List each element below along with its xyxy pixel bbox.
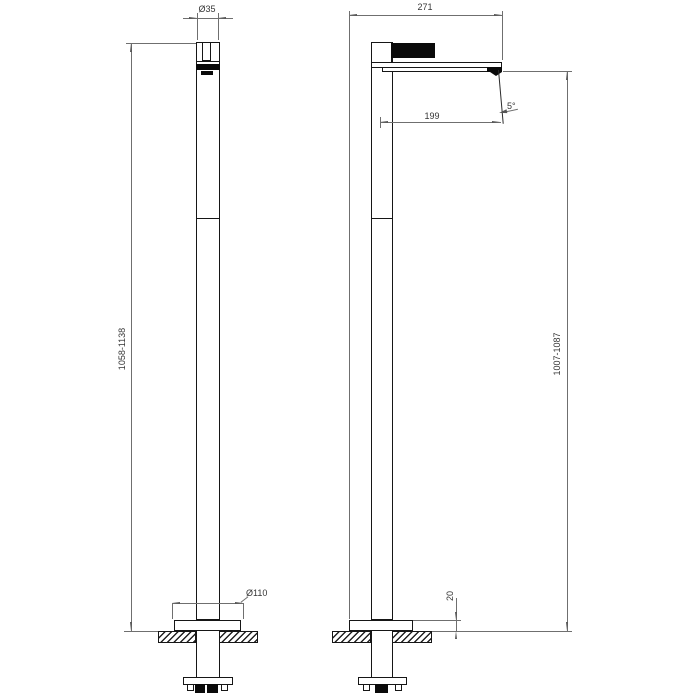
dim-arrow	[380, 121, 388, 123]
extension-line	[413, 620, 461, 621]
dim-arrow	[566, 622, 568, 631]
handle-seat-line	[196, 61, 220, 62]
extension-line	[503, 71, 572, 72]
dim-arrow	[566, 71, 568, 80]
dim-line	[131, 43, 132, 631]
dim-arrow	[172, 602, 180, 604]
floor-hatch	[219, 631, 258, 643]
handle-collar-notch	[201, 71, 213, 75]
dim-label-spout-reach: 199	[414, 111, 450, 121]
extension-line	[243, 603, 244, 619]
dim-label-base-diameter: Ø110	[246, 588, 267, 598]
flange-bolt	[395, 684, 402, 691]
base-plate-right	[349, 620, 413, 631]
column-joint-line	[371, 218, 393, 219]
hose-connector	[375, 684, 388, 693]
dim-label-height-right: 1007-1087	[552, 319, 562, 389]
extension-line	[197, 13, 198, 40]
extension-line	[502, 11, 503, 60]
base-plate-left	[174, 620, 241, 631]
column-joint-line	[196, 218, 220, 219]
floor-line	[124, 631, 158, 632]
dim-line	[172, 603, 244, 604]
dim-label-base-height: 20	[445, 586, 455, 606]
floor-hatch	[392, 631, 432, 643]
supply-pipe-left	[196, 631, 220, 677]
flow-angle-line	[498, 70, 504, 124]
floor-hatch	[158, 631, 196, 643]
dim-arrow	[130, 43, 132, 52]
spout-outlet-tip	[490, 72, 502, 76]
handle-collar-band	[196, 64, 220, 70]
dim-arrow	[492, 121, 500, 123]
dim-arrow	[349, 14, 357, 16]
hose-connector	[195, 684, 205, 693]
dim-line	[567, 71, 568, 631]
floor-line	[432, 631, 572, 632]
technical-drawing-canvas: Ø35 1058-1138 Ø110	[0, 0, 700, 700]
extension-line	[218, 13, 219, 40]
joystick-handle-stem	[202, 42, 211, 61]
supply-pipe-right	[371, 631, 393, 677]
faucet-column-left	[196, 42, 220, 620]
spout-underside-lip	[382, 67, 502, 72]
hose-connector	[207, 684, 218, 693]
faucet-column-right	[371, 42, 393, 620]
flange-bolt	[221, 684, 228, 691]
dim-label-total-depth: 271	[405, 2, 445, 12]
dim-arrow	[130, 622, 132, 631]
dim-line	[380, 122, 501, 123]
dim-arrow	[455, 631, 457, 639]
dim-label-height-left: 1058-1138	[117, 314, 127, 384]
flange-bolt	[187, 684, 194, 691]
dim-arrow	[189, 17, 197, 19]
dim-arrow	[218, 17, 226, 19]
extension-tick	[380, 117, 381, 128]
dim-line	[349, 15, 502, 16]
dim-arrow	[455, 612, 457, 620]
leader-arrow	[499, 109, 508, 115]
flange-bolt	[363, 684, 370, 691]
extension-line	[349, 11, 350, 619]
handle-lever-black	[391, 43, 435, 58]
floor-hatch	[332, 631, 371, 643]
extension-line	[126, 43, 196, 44]
dim-arrow	[494, 14, 502, 16]
extension-line	[172, 603, 173, 619]
